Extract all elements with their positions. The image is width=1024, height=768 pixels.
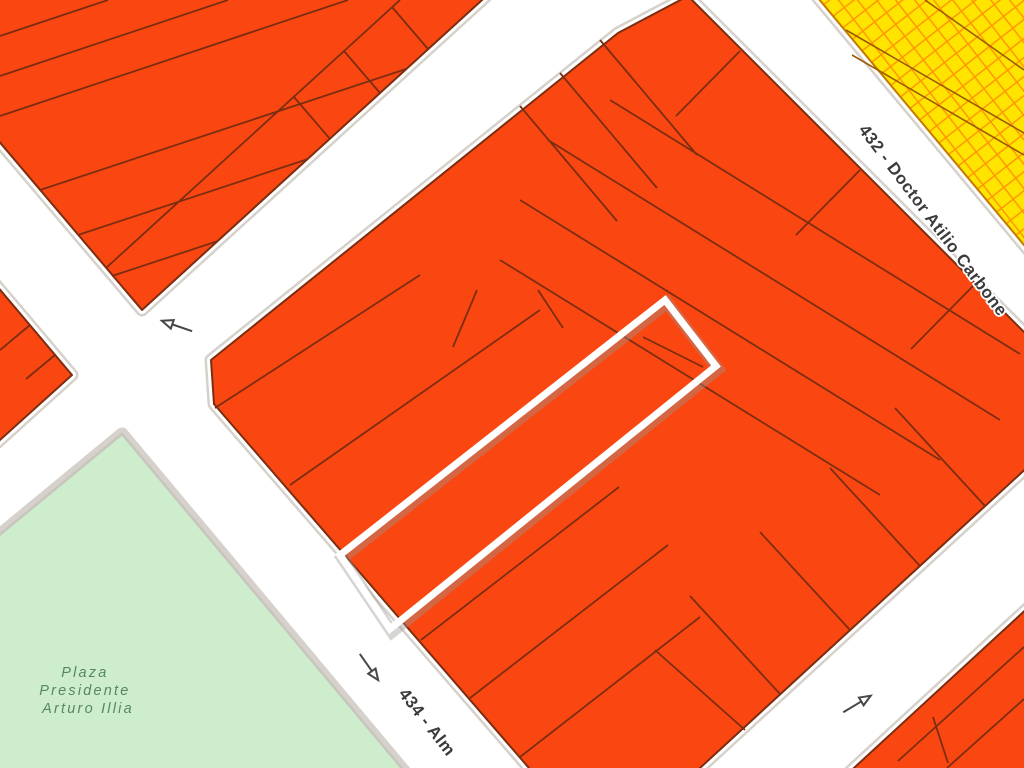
park-label-line2: Presidente bbox=[39, 683, 130, 699]
arrow-icon bbox=[160, 317, 193, 336]
street-label-434: 434 - Alm bbox=[395, 685, 459, 760]
one-way-arrow-southeast bbox=[356, 651, 382, 682]
map-canvas[interactable]: 432 - Doctor Atilio Carbone 434 - Alm Pl… bbox=[0, 0, 1024, 768]
arrow-icon bbox=[356, 651, 382, 682]
park-label-line1: Plaza bbox=[61, 665, 108, 681]
park-label-line3: Arturo Illia bbox=[41, 701, 134, 717]
one-way-arrow-northeast bbox=[841, 692, 873, 716]
block-west bbox=[0, 266, 72, 458]
one-way-arrow-southwest bbox=[160, 317, 193, 336]
arrow-icon bbox=[841, 692, 873, 716]
